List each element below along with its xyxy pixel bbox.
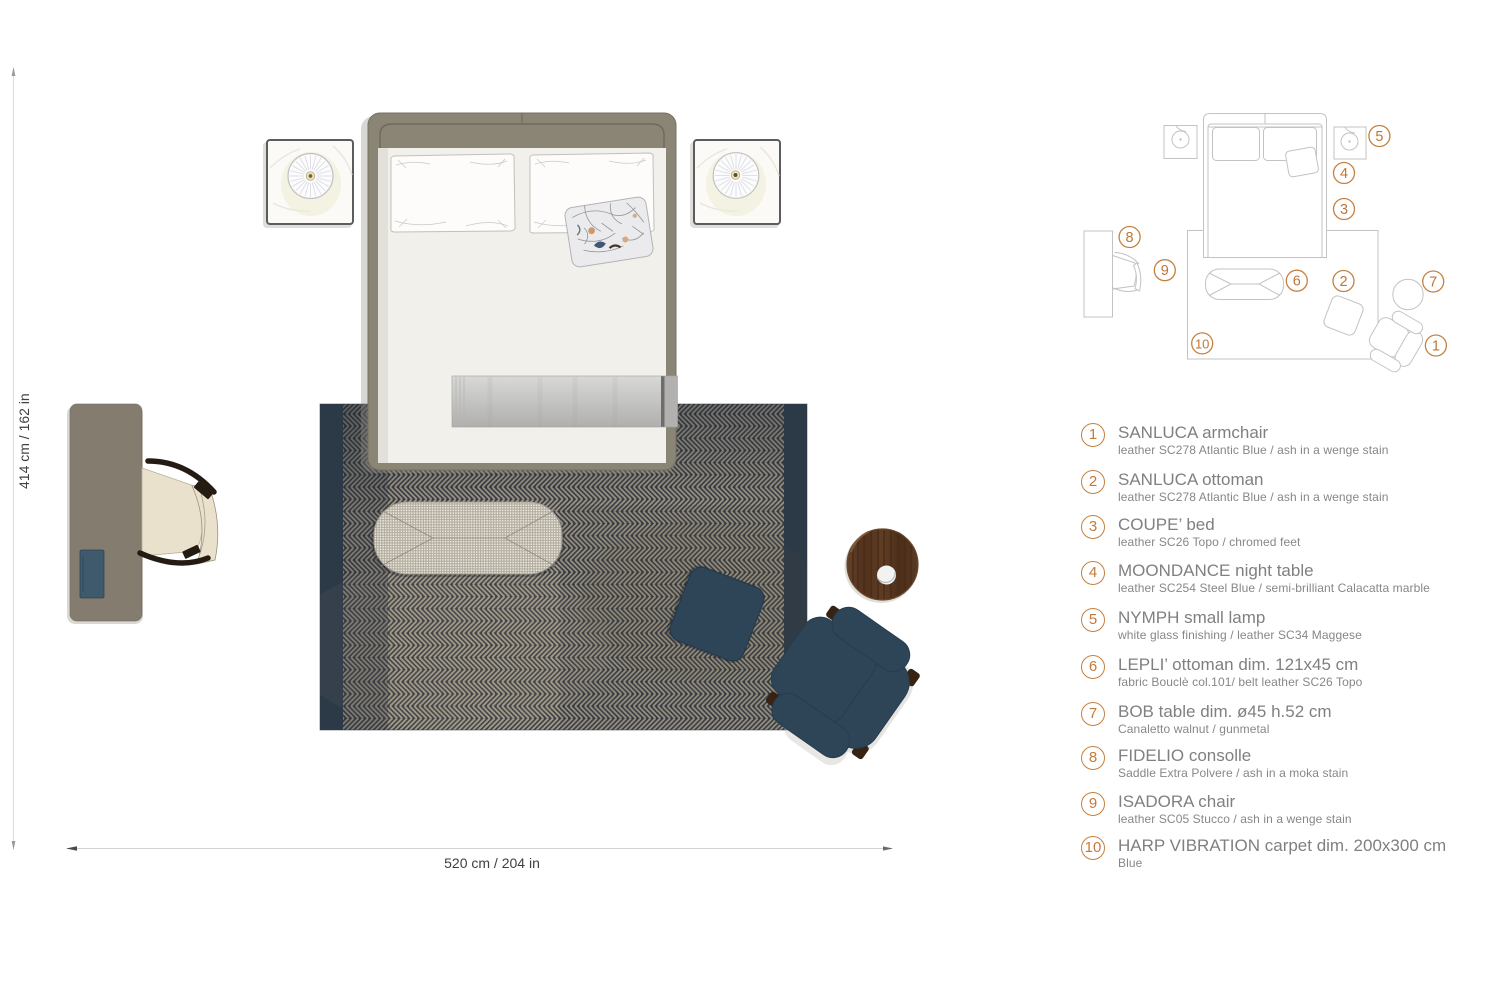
svg-text:10: 10	[1195, 336, 1209, 351]
svg-text:4: 4	[1340, 166, 1348, 182]
svg-text:9: 9	[1161, 263, 1169, 279]
svg-text:2: 2	[1339, 274, 1347, 290]
svg-text:3: 3	[1340, 202, 1348, 218]
svg-text:8: 8	[1126, 230, 1134, 246]
svg-text:6: 6	[1293, 274, 1301, 290]
svg-text:7: 7	[1429, 275, 1437, 291]
svg-text:5: 5	[1375, 129, 1383, 145]
svg-text:414 cm / 162 in: 414 cm / 162 in	[16, 393, 32, 489]
svg-text:520 cm / 204 in: 520 cm / 204 in	[444, 855, 540, 871]
svg-text:1: 1	[1432, 339, 1440, 355]
